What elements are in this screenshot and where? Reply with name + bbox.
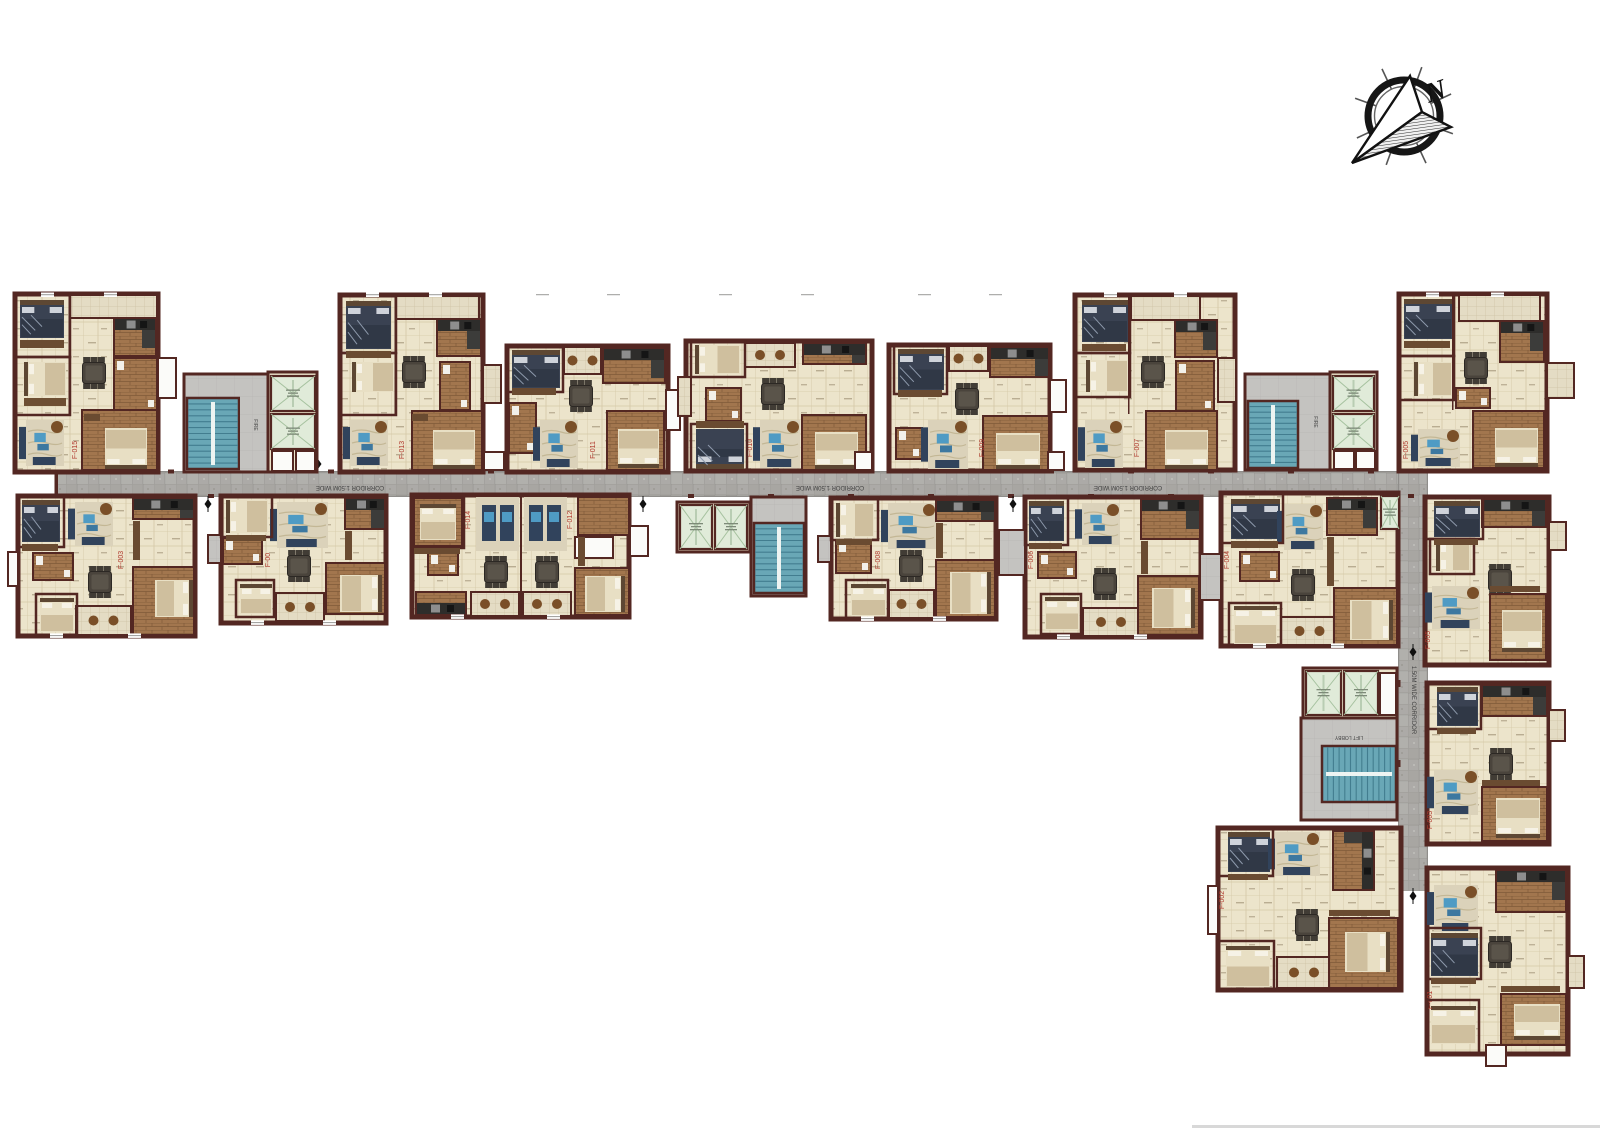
svg-text:F-012: F-012 [567, 511, 574, 529]
svg-text:LIFT LOBBY: LIFT LOBBY [1334, 734, 1363, 740]
svg-text:F-014: F-014 [465, 511, 472, 529]
svg-text:F-004: F-004 [1224, 551, 1231, 569]
svg-text:F-003: F-003 [118, 551, 125, 569]
svg-text:CORRIDOR 1.50M WIDE: CORRIDOR 1.50M WIDE [796, 484, 864, 490]
svg-text:F-011: F-011 [590, 441, 597, 459]
svg-text:F-013: F-013 [399, 441, 406, 459]
svg-text:F-005: F-005 [1425, 631, 1432, 649]
svg-text:F-006: F-006 [1028, 551, 1035, 569]
svg-text:F-015: F-015 [72, 441, 79, 459]
svg-text:F-007: F-007 [1134, 439, 1141, 457]
svg-text:CORRIDOR 1.50M WIDE: CORRIDOR 1.50M WIDE [316, 484, 384, 490]
svg-text:FIRE: FIRE [1312, 416, 1318, 428]
svg-text:F-003: F-003 [1427, 811, 1434, 829]
svg-text:F-008: F-008 [875, 551, 882, 569]
svg-text:CORRIDOR 1.50M WIDE: CORRIDOR 1.50M WIDE [1094, 484, 1162, 490]
svg-text:F-009: F-009 [979, 439, 986, 457]
svg-text:F-00: F-00 [265, 553, 272, 568]
svg-text:1.50M WIDE CORRIDOR: 1.50M WIDE CORRIDOR [1410, 666, 1416, 735]
svg-text:F-002: F-002 [1219, 891, 1226, 909]
svg-text:FIRE: FIRE [252, 419, 258, 431]
svg-text:F-005: F-005 [1403, 441, 1410, 459]
